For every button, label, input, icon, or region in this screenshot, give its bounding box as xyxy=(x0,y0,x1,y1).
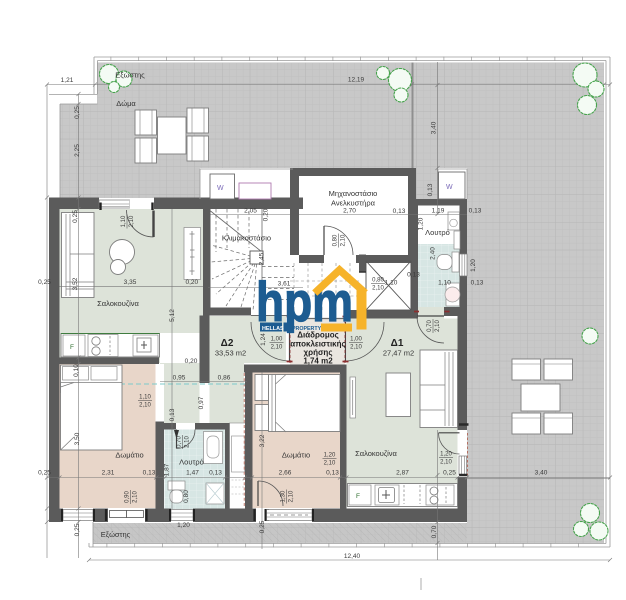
svg-text:0,13: 0,13 xyxy=(469,208,482,215)
svg-text:0,20: 0,20 xyxy=(185,279,198,286)
svg-text:2,66: 2,66 xyxy=(279,470,292,477)
svg-text:2,87: 2,87 xyxy=(396,470,409,477)
svg-text:0,95: 0,95 xyxy=(173,375,186,382)
svg-text:2,10: 2,10 xyxy=(139,403,151,409)
svg-text:W: W xyxy=(217,185,224,192)
svg-text:3,35: 3,35 xyxy=(124,279,137,286)
svg-text:12,40: 12,40 xyxy=(344,553,361,560)
svg-text:1,00: 1,00 xyxy=(271,337,283,343)
svg-text:0,13: 0,13 xyxy=(169,408,176,421)
svg-text:3,52: 3,52 xyxy=(72,277,79,290)
svg-text:0,25: 0,25 xyxy=(38,279,51,286)
svg-text:2,25: 2,25 xyxy=(74,144,81,157)
svg-text:1,19: 1,19 xyxy=(432,208,445,215)
svg-text:1,24: 1,24 xyxy=(260,333,267,346)
svg-text:0,20: 0,20 xyxy=(185,358,198,365)
svg-text:1,20: 1,20 xyxy=(418,217,425,230)
svg-text:1,20: 1,20 xyxy=(440,452,452,458)
svg-text:Σαλοκουζίνα: Σαλοκουζίνα xyxy=(97,299,139,308)
svg-text:Εξώστης: Εξώστης xyxy=(101,530,131,539)
svg-text:2,45: 2,45 xyxy=(259,252,266,265)
svg-text:Δ2: Δ2 xyxy=(221,338,234,349)
svg-text:5,12: 5,12 xyxy=(169,309,176,322)
svg-text:1,20: 1,20 xyxy=(324,453,336,459)
svg-text:1,47: 1,47 xyxy=(186,470,199,477)
svg-text:Εξώστης: Εξώστης xyxy=(115,71,145,80)
svg-text:2,10: 2,10 xyxy=(435,320,441,332)
svg-text:2,10: 2,10 xyxy=(129,215,135,227)
svg-text:F: F xyxy=(70,344,74,351)
svg-text:2,05: 2,05 xyxy=(244,208,257,215)
svg-text:0,13: 0,13 xyxy=(471,280,484,287)
svg-text:1,00: 1,00 xyxy=(350,337,362,343)
svg-text:1,10: 1,10 xyxy=(385,280,398,287)
svg-text:0,80: 0,80 xyxy=(183,490,190,503)
svg-text:2,10: 2,10 xyxy=(324,461,336,467)
svg-text:Κλιμακοστάσιο: Κλιμακοστάσιο xyxy=(222,234,271,243)
svg-text:2,40: 2,40 xyxy=(430,247,437,260)
svg-text:3,50: 3,50 xyxy=(74,432,81,445)
svg-text:1,10: 1,10 xyxy=(139,395,151,401)
svg-text:0,13: 0,13 xyxy=(427,183,434,196)
svg-text:Δωμάτιο: Δωμάτιο xyxy=(115,451,143,460)
svg-text:0,70: 0,70 xyxy=(177,436,183,448)
svg-text:F: F xyxy=(356,493,360,500)
svg-text:0,80: 0,80 xyxy=(333,234,339,246)
svg-text:Μηχανοστάσιο: Μηχανοστάσιο xyxy=(329,189,378,198)
svg-text:1,20: 1,20 xyxy=(177,522,190,529)
svg-text:1,10: 1,10 xyxy=(438,280,451,287)
svg-text:Λουτρό: Λουτρό xyxy=(425,228,450,237)
svg-text:1,20: 1,20 xyxy=(470,259,477,272)
svg-text:Δώμα: Δώμα xyxy=(116,99,136,108)
svg-text:Λουτρό: Λουτρό xyxy=(179,458,204,467)
svg-text:0,86: 0,86 xyxy=(218,375,231,382)
svg-text:0,20: 0,20 xyxy=(263,208,270,221)
svg-text:Δ1: Δ1 xyxy=(391,338,404,349)
svg-text:0,25: 0,25 xyxy=(38,470,51,477)
svg-text:1,10: 1,10 xyxy=(121,215,127,227)
svg-text:27,47 m2: 27,47 m2 xyxy=(383,349,414,358)
svg-text:1,74 m2: 1,74 m2 xyxy=(303,357,333,366)
svg-text:PROPERTY: PROPERTY xyxy=(292,326,322,332)
svg-text:2,10: 2,10 xyxy=(341,234,347,246)
svg-text:2,70: 2,70 xyxy=(343,208,356,215)
svg-text:0,13: 0,13 xyxy=(326,470,339,477)
svg-text:3,40: 3,40 xyxy=(535,470,548,477)
svg-text:1,30: 1,30 xyxy=(281,490,287,502)
svg-text:0,25: 0,25 xyxy=(74,523,81,536)
svg-text:0,97: 0,97 xyxy=(198,396,205,409)
svg-text:2,10: 2,10 xyxy=(133,491,139,503)
svg-text:2,31: 2,31 xyxy=(102,470,115,477)
svg-text:0,25: 0,25 xyxy=(443,470,456,477)
svg-text:0,13: 0,13 xyxy=(143,470,156,477)
svg-text:0,90: 0,90 xyxy=(125,491,131,503)
svg-text:33,53 m2: 33,53 m2 xyxy=(215,349,246,358)
svg-text:0,70: 0,70 xyxy=(427,320,433,332)
svg-text:3,40: 3,40 xyxy=(431,121,438,134)
svg-text:0,25: 0,25 xyxy=(72,210,79,223)
svg-text:0,13: 0,13 xyxy=(393,208,406,215)
svg-text:HELLAS: HELLAS xyxy=(262,326,284,332)
svg-text:2,10: 2,10 xyxy=(372,286,384,292)
svg-text:2,10: 2,10 xyxy=(350,345,362,351)
svg-text:Σαλοκουζίνα: Σαλοκουζίνα xyxy=(355,449,397,458)
svg-text:2,10: 2,10 xyxy=(440,460,452,466)
svg-text:0,70: 0,70 xyxy=(431,525,438,538)
svg-text:0,25: 0,25 xyxy=(74,106,81,119)
svg-text:W: W xyxy=(446,184,453,191)
svg-text:0,25: 0,25 xyxy=(259,520,266,533)
svg-text:2,10: 2,10 xyxy=(289,490,295,502)
svg-text:0,80: 0,80 xyxy=(372,278,384,284)
svg-text:0,13: 0,13 xyxy=(209,470,222,477)
svg-text:0,10: 0,10 xyxy=(73,364,80,377)
svg-text:12,19: 12,19 xyxy=(348,77,365,84)
svg-text:2,10: 2,10 xyxy=(271,345,283,351)
svg-text:Δωμάτιο: Δωμάτιο xyxy=(282,451,310,460)
svg-text:0,13: 0,13 xyxy=(407,272,420,279)
svg-text:1,87: 1,87 xyxy=(164,463,171,476)
svg-text:1,21: 1,21 xyxy=(61,77,74,84)
svg-text:3,22: 3,22 xyxy=(259,434,266,447)
svg-text:Ανελκυστήρα: Ανελκυστήρα xyxy=(331,199,376,208)
svg-text:2,10: 2,10 xyxy=(185,436,191,448)
